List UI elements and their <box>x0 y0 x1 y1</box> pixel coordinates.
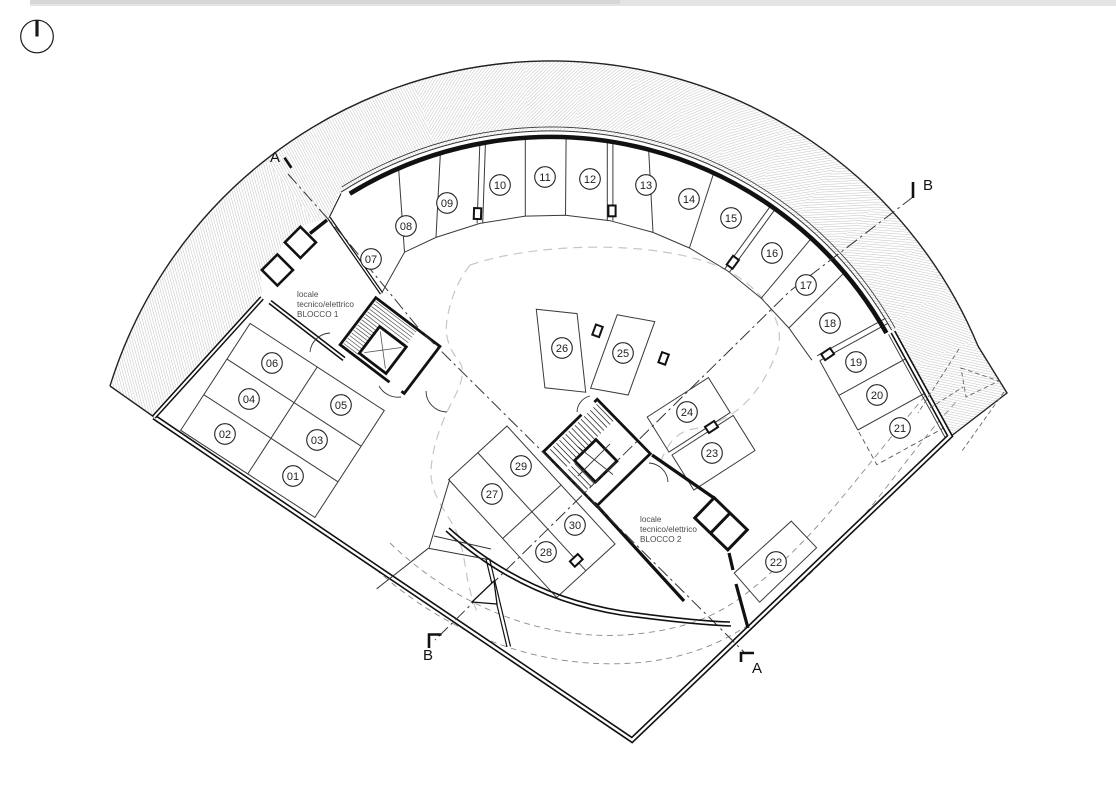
svg-text:19: 19 <box>850 357 862 369</box>
svg-text:23: 23 <box>706 448 718 460</box>
svg-text:07: 07 <box>365 254 377 266</box>
svg-text:22: 22 <box>770 557 782 569</box>
svg-text:12: 12 <box>584 174 596 186</box>
svg-text:25: 25 <box>617 348 629 360</box>
svg-text:17: 17 <box>800 280 812 292</box>
svg-text:02: 02 <box>219 429 231 441</box>
svg-text:10: 10 <box>494 180 506 192</box>
svg-text:11: 11 <box>539 172 550 184</box>
svg-text:B: B <box>423 647 433 664</box>
svg-text:18: 18 <box>824 318 836 330</box>
svg-text:06: 06 <box>266 358 278 370</box>
svg-text:26: 26 <box>556 343 568 355</box>
svg-text:13: 13 <box>640 180 652 192</box>
svg-text:08: 08 <box>400 221 412 233</box>
svg-text:04: 04 <box>243 394 255 406</box>
svg-text:29: 29 <box>515 461 527 473</box>
svg-text:30: 30 <box>569 520 581 532</box>
svg-text:20: 20 <box>871 390 883 402</box>
svg-text:05: 05 <box>335 400 347 412</box>
svg-text:A: A <box>270 149 280 166</box>
svg-text:24: 24 <box>681 407 693 419</box>
svg-text:21: 21 <box>894 423 906 435</box>
svg-text:01: 01 <box>287 471 299 483</box>
svg-text:15: 15 <box>725 213 737 225</box>
svg-text:14: 14 <box>683 194 695 206</box>
svg-text:16: 16 <box>766 248 778 260</box>
svg-text:B: B <box>923 177 933 194</box>
svg-text:03: 03 <box>311 435 323 447</box>
svg-text:A: A <box>752 660 762 677</box>
svg-text:09: 09 <box>441 198 453 210</box>
svg-text:27: 27 <box>486 489 498 501</box>
svg-text:28: 28 <box>540 547 552 559</box>
